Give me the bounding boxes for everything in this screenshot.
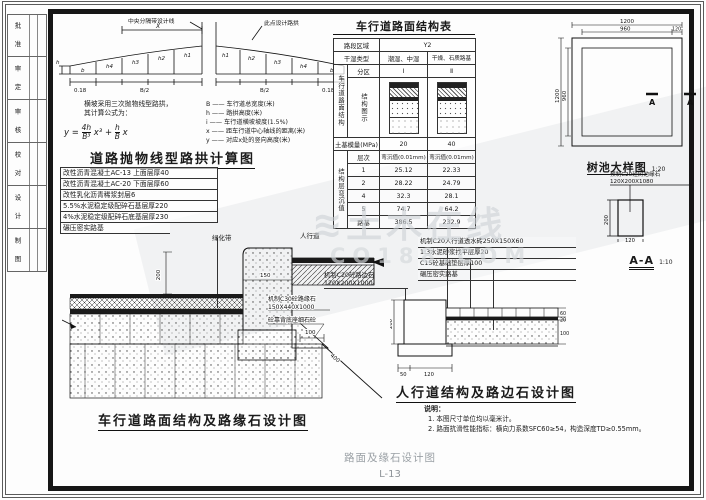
segment-label: h2 [158,56,165,62]
strip-divider [29,15,30,56]
crown-formula: y = 4hB³ x³ + hB x [64,124,128,141]
signoff-cell: 审 核 [7,100,47,143]
table-row: 路段区域 Y2 [334,39,476,52]
header-cell: 土基模量(MPa) [334,138,380,151]
cell: 25.12 [380,164,428,177]
tree-pool-linework [558,22,696,146]
dim-label: 120 [424,372,434,378]
cell: 22.33 [428,164,476,177]
watermark-logo-icon: ≋ [312,205,346,246]
table-row: 结构图示 [334,78,476,138]
curb-callout: 机制C20砼路边石 120X200X1000 [324,272,408,289]
table-row: 干湿类型 潮湿、中湿 干燥、石质路基 [334,52,476,65]
legend-item: y —— 对应x处的竖向高度(米) [206,136,351,145]
layer-item: 4%水泥稳定级配碎石底基层厚230 [60,211,218,223]
title-strip: 批 准 审 定 审 核 校 对 设 计 制 图 [7,14,47,272]
callout-label: 120X200X1000 [324,280,408,289]
aa-linework [607,185,692,242]
segment-label: h1 [184,53,191,59]
signoff-label: 审 定 [12,65,22,92]
signoff-cell: 批 准 [7,14,47,57]
cell: 28.22 [380,177,428,190]
callout-label: 砼靠背底座细石砼 [268,316,316,324]
header-cell: 弯沉值(0.01mm) [428,151,476,164]
section-mark: A [687,98,694,107]
crown-diagram: X h 中央分隔带设计线 此点设计路拱 b h4 h3 h2 h1 h1 h2 … [56,16,348,94]
sidewalk-linework [391,300,566,372]
callout-label: 120X200X1080 [610,179,654,185]
sheet-number: L-13 [280,469,500,480]
dim-label: 200 [156,269,162,280]
sidewalk-section: 200 60 20 100 50 120 [390,292,575,380]
watermark-url: CO188.COM [330,244,532,268]
aa-title: A-A [629,254,654,270]
strip-divider [29,229,30,271]
dim-label: 120 [625,238,635,242]
dim-label: B/2 [260,88,269,94]
pavement-structure-icon [437,82,467,134]
segment-label: b [81,68,85,74]
header-cell: 路段区域 [334,39,380,52]
segment-label: h3 [274,60,281,66]
dim-label: 200 [604,215,610,225]
dim-label: 960 [562,90,568,101]
header-cell: 车行道路面结构 [334,65,348,138]
table-row: 土基模量(MPa) 20 40 [334,138,476,151]
crown-legend: B —— 车行道总宽度(米) h —— 路拱高度(米) i —— 车行道横坡坡度… [206,100,351,145]
legend-item: h —— 路拱高度(米) [206,109,351,118]
cell: 2 [348,177,380,190]
aa-section: 预制C20砼树池缘石 120X200X1080 200 120 [596,168,706,242]
value-cell: 20 [380,138,428,151]
dim-label: h [56,60,60,66]
value-cell: Ⅰ [380,65,428,78]
segment-label: h4 [300,64,307,70]
strip-divider [37,100,38,142]
legend-item: B —— 车行道总宽度(米) [206,100,351,109]
footer: 路面及缘石设计图 L-13 [280,450,500,480]
header-cell: 干湿类型 [334,52,380,65]
layer-list: 改性沥青混凝土AC-13 上面层厚40 改性沥青混凝土AC-20 下面层厚60 … [60,168,218,234]
dim-label: 50 [400,372,407,378]
dim-label: 1200 [555,89,561,103]
footer-caption: 路面及缘石设计图 [280,450,500,465]
value-cell: 干燥、石质路基 [428,52,476,65]
value-cell: Ⅱ [428,65,476,78]
callout-label: 机制C20砼路边石 [324,272,408,280]
header-cell: 弯沉值(0.01mm) [380,151,428,164]
cell: 1 [348,164,380,177]
dim-label: 20 [560,318,566,324]
aa-detail-block: 预制C20砼树池缘石 120X200X1080 200 120 A-A 1:10 [596,168,706,268]
segment-label: h3 [132,60,139,66]
value-cell: 潮湿、中湿 [380,52,428,65]
callout-label: 机制C30砼路缘石 [268,295,316,303]
signoff-label: 设 计 [12,194,22,221]
segment-label: h2 [248,56,255,62]
strip-divider [29,186,30,228]
signoff-label: 制 图 [12,237,22,264]
strip-divider [37,186,38,228]
tree-pool-plan: 1200 960 120 1200 960 A A [550,16,702,150]
dim-label: 1200 [620,19,634,25]
value-cell: 40 [428,138,476,151]
signoff-cell: 制 图 [7,229,47,272]
watermark-brand: ≋土木在线 [312,196,506,248]
notes-block: 说明： 1. 本图尺寸单位均以毫米计。 2. 路面抗滑性能指标：横向力系数SFC… [424,404,696,434]
header-cell: 分区 [348,65,380,78]
callout-label: 150X440X1000 [268,304,315,311]
crown-linework [59,22,344,86]
value-cell: Y2 [380,39,476,52]
dim-label: 960 [620,27,631,33]
leader-label: 中央分隔带设计线 [128,17,175,25]
cell: 24.79 [428,177,476,190]
callout-label: 碾压密实路基 [418,270,576,281]
aa-scale: 1:10 [659,259,672,266]
signoff-label: 批 准 [12,22,22,49]
dim-label: 120 [672,27,681,33]
area-label: 绿化带 [212,233,232,242]
aa-caption: A-A 1:10 [596,249,706,268]
signoff-cell: 设 计 [7,186,47,229]
dim-label: B/2 [140,88,149,94]
header-cell: 结构图示 [348,78,380,138]
structure-diagram-cell [380,78,428,138]
dim-label: 60 [560,311,566,317]
table-row: 228.2224.79 [334,177,476,190]
callout-label: 预制C20砼树池缘石 [610,170,661,178]
header-cell: 层次 [348,151,380,164]
legend-item: i —— 车行道横坡坡度(1.5%) [206,118,351,127]
table-row: 125.1222.33 [334,164,476,177]
dim-label: 0.18 [74,88,87,94]
segment-label: h4 [106,64,113,70]
signoff-label: 校 对 [12,151,22,178]
table-title: 车行道路面结构表 [333,18,475,35]
tree-pool-block: 1200 960 120 1200 960 A A 树池大样图 1:20 [550,16,702,175]
dim-label: 200 [390,319,394,329]
signoff-cell: 校 对 [7,143,47,186]
road-section-title: 车行道路面结构及路缘石设计图 [98,410,308,431]
drawing-sheet: ≋土木在线 CO188.COM 批 准 审 定 审 核 校 对 设 计 制 图 [0,0,706,500]
pavement-structure-icon [389,82,419,134]
leader-label: 此点设计路拱 [264,19,299,27]
strip-divider [37,57,38,99]
notes-heading: 说明： [424,404,696,414]
section-mark: A [649,98,656,107]
note-item: 2. 路面抗滑性能指标：横向力系数SFC60≥54，构造深度TD≥0.55mm。 [424,424,696,434]
table-row: 结构层弯沉值 层次 弯沉值(0.01mm) 弯沉值(0.01mm) [334,151,476,164]
road-section-linework [62,248,384,398]
strip-divider [29,100,30,142]
signoff-cell: 审 定 [7,57,47,100]
strip-divider [29,57,30,99]
table-row: 车行道路面结构 分区 Ⅰ Ⅱ [334,65,476,78]
dim-label: 400 [329,353,341,365]
crown-note: 横坡采用三次抛物线型路拱， 其计算公式为： [84,100,209,118]
strip-divider [29,143,30,185]
signoff-label: 审 核 [12,108,22,135]
strip-divider [37,229,38,271]
note-item: 1. 本图尺寸单位均以毫米计。 [424,414,696,424]
dim-label: 100 [305,330,316,336]
segment-label: h1 [222,53,229,59]
sidewalk-section-title: 人行道结构及路边石设计图 [396,382,576,403]
dim-label: 100 [560,331,569,337]
strip-divider [37,15,38,56]
dim-label: 150 [260,273,271,279]
structure-diagram-cell [428,78,476,138]
crown-diagram-block: X h 中央分隔带设计线 此点设计路拱 b h4 h3 h2 h1 h1 h2 … [56,16,348,166]
legend-item: x —— 距车行道中心轴线的距离(米) [206,127,351,136]
crown-title: 道路抛物线型路拱计算图 [90,148,255,169]
strip-divider [37,143,38,185]
